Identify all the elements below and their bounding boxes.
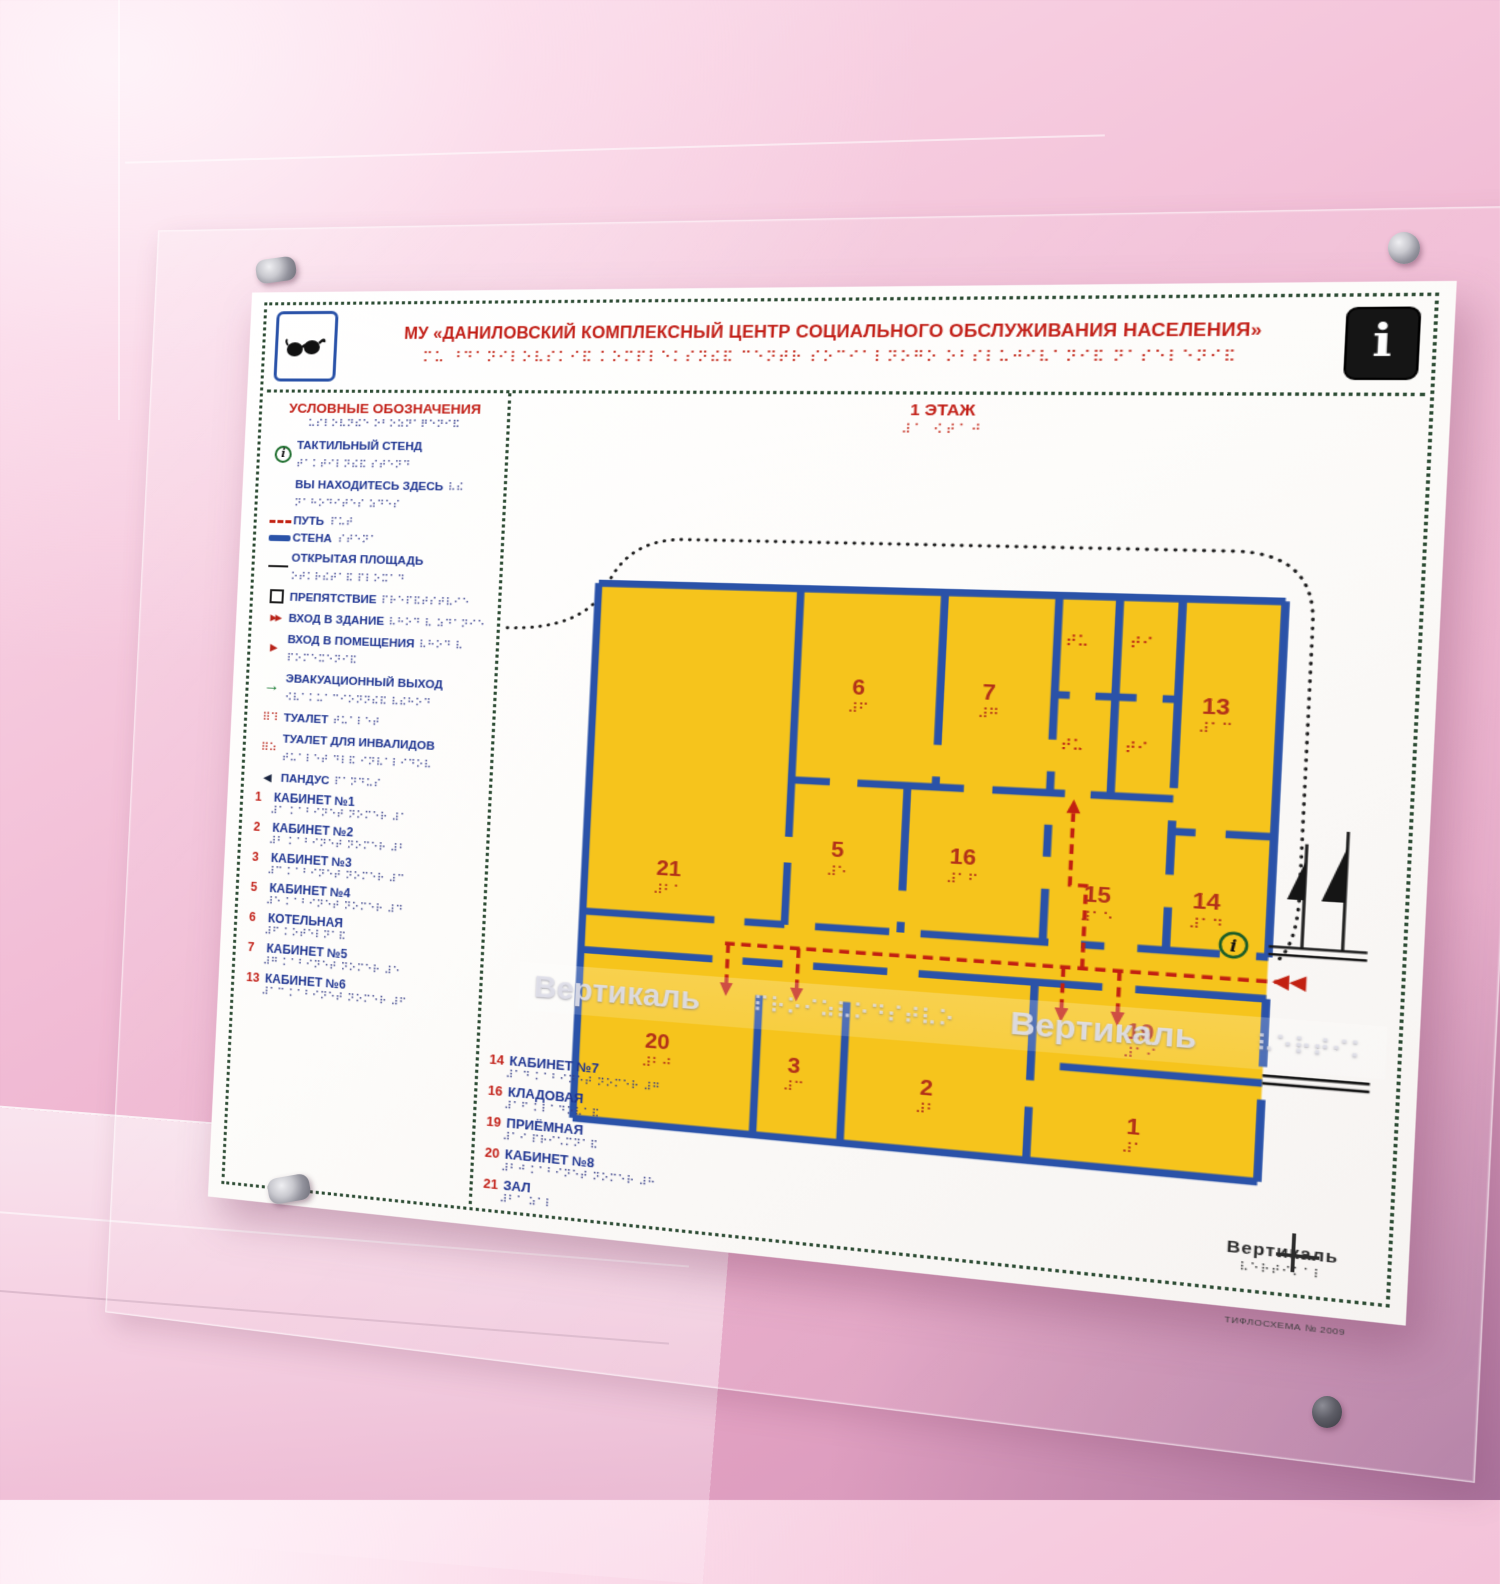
room-number: 6 [249, 910, 264, 925]
legend-heading: УСЛОВНЫЕ ОБОЗНАЧЕНИЯ [272, 401, 500, 417]
legend-item-label: ТУАЛЕТ ДЛЯ ИНВАЛИДОВ [282, 733, 435, 752]
you-are-here-marker: i [1220, 932, 1248, 958]
mounted-sign: МУ «ДАНИЛОВСКИЙ КОМПЛЕКСНЫЙ ЦЕНТР СОЦИАЛ… [208, 281, 1457, 1326]
legend-symbol-icon [265, 531, 292, 546]
room-number: 20 [484, 1145, 499, 1161]
svg-text:7: 7 [982, 680, 997, 705]
legend-items: ТАКТИЛЬНЫЙ СТЕНД ⠞⠁⠅⠞⠊⠇⠝⠮⠯ ⠎⠞⠑⠝⠙ ВЫ НАХО… [254, 436, 498, 798]
svg-text:5: 5 [831, 838, 845, 863]
sign-title-braille: ⠍⠥ ⠘⠙⠁⠝⠊⠇⠕⠧⠎⠅⠊⠯ ⠅⠕⠍⠏⠇⠑⠅⠎⠝⠮⠯ ⠉⠑⠝⠞⠗ ⠎⠕⠉⠊⠁⠇… [348, 348, 1329, 366]
room-number: 16 [488, 1083, 503, 1099]
legend-item-label: ПАНДУС [280, 773, 329, 788]
legend-item: ТАКТИЛЬНЫЙ СТЕНД ⠞⠁⠅⠞⠊⠇⠝⠮⠯ ⠎⠞⠑⠝⠙ [269, 436, 498, 475]
legend-item-braille: ⠕⠞⠅⠗⠮⠞⠁⠯ ⠏⠇⠕⠭⠁⠙ [290, 572, 405, 586]
legend-item-braille: ⠞⠥⠁⠇⠑⠞ ⠙⠇⠯ ⠊⠝⠧⠁⠇⠊⠙⠕⠧ [282, 753, 433, 772]
legend-symbol-icon [260, 640, 287, 655]
floor-plan-area: 1 ЭТАЖ ⠼⠁ ⠪⠞⠁⠚ [472, 393, 1425, 1300]
sign-title: МУ «ДАНИЛОВСКИЙ КОМПЛЕКСНЫЙ ЦЕНТР СОЦИАЛ… [349, 321, 1330, 345]
svg-text:15: 15 [1083, 883, 1112, 909]
svg-text:1: 1 [1126, 1115, 1141, 1141]
photo-of-tactile-sign: { "colors":{"panel":"#ffffff","dots_bord… [0, 0, 1500, 1500]
legend-item: ОТКРЫТАЯ ПЛОЩАДЬ ⠕⠞⠅⠗⠮⠞⠁⠯ ⠏⠇⠕⠭⠁⠙ [263, 548, 492, 590]
legend-item-label: СТЕНА [292, 532, 332, 546]
legend-item-label: ВЫ НАХОДИТЕСЬ ЗДЕСЬ [295, 479, 444, 493]
tactile-sign-panel: МУ «ДАНИЛОВСКИЙ КОМПЛЕКСНЫЙ ЦЕНТР СОЦИАЛ… [208, 281, 1457, 1326]
svg-text:⠼⠋: ⠼⠋ [847, 700, 869, 717]
svg-text:⠞⠥: ⠞⠥ [1060, 738, 1085, 756]
svg-text:i: i [1230, 938, 1238, 957]
svg-text:⠼⠑: ⠼⠑ [826, 862, 848, 880]
glasses-icon [273, 311, 338, 382]
svg-text:20: 20 [644, 1030, 670, 1056]
legend-item-braille: ⠪⠧⠁⠅⠥⠁⠉⠊⠕⠝⠝⠮⠯ ⠧⠮⠓⠕⠙ [284, 692, 431, 709]
wall-corner-line [118, 0, 120, 420]
legend-symbol-icon [268, 486, 295, 500]
legend-item-braille: ⠎⠞⠑⠝⠁ [338, 534, 378, 547]
legend-symbol-icon [255, 739, 282, 754]
room-number: 2 [253, 820, 268, 835]
svg-text:⠼⠁⠉: ⠼⠁⠉ [1198, 719, 1233, 737]
legend-symbol-icon [258, 677, 286, 696]
legend-symbol-icon [254, 769, 281, 784]
legend-symbol-icon [264, 559, 291, 574]
room-list-left: 1 КАБИНЕТ №1 ⠼⠁ ⠅⠁⠃⠊⠝⠑⠞ ⠝⠕⠍⠑⠗ ⠼⠁ 2 КАБИН… [243, 789, 480, 1014]
legend-item-braille: ⠏⠗⠑⠏⠯⠞⠎⠞⠧⠊⠑ [381, 595, 470, 609]
room-number: 7 [247, 940, 262, 955]
svg-text:⠼⠁⠑: ⠼⠁⠑ [1079, 907, 1113, 926]
room-number: 19 [486, 1114, 501, 1130]
svg-text:⠼⠁⠊: ⠼⠁⠊ [1122, 1044, 1157, 1064]
legend-item-label: ПУТЬ [293, 515, 324, 528]
svg-text:⠼⠁⠙: ⠼⠁⠙ [1188, 914, 1223, 933]
svg-text:⠼⠃: ⠼⠃ [914, 1100, 936, 1118]
room-number: 14 [489, 1052, 504, 1068]
info-icon: i [1343, 306, 1422, 380]
room-number: 1 [255, 789, 270, 804]
standoff-fixing [1312, 1396, 1342, 1428]
legend-item-braille: ⠧⠓⠕⠙ ⠧ ⠵⠙⠁⠝⠊⠑ [388, 617, 485, 631]
svg-text:⠞⠊: ⠞⠊ [1124, 741, 1149, 759]
legend-item-braille: ⠏⠁⠝⠙⠥⠎ [334, 776, 382, 790]
ramp-symbol [1287, 844, 1348, 902]
legend-item-label: ОТКРЫТАЯ ПЛОЩАДЬ [291, 552, 423, 567]
legend-item-label: ВХОД В ЗДАНИЕ [288, 613, 384, 628]
svg-text:⠼⠃⠁: ⠼⠃⠁ [652, 881, 683, 899]
legend-item-label: ПРЕПЯТСТВИЕ [289, 592, 377, 607]
legend-heading-braille: ⠥⠎⠇⠕⠧⠝⠮⠑ ⠕⠃⠕⠵⠝⠁⠟⠑⠝⠊⠯ [271, 418, 499, 432]
svg-text:14: 14 [1192, 889, 1222, 916]
svg-text:⠼⠁: ⠼⠁ [1121, 1139, 1144, 1158]
legend-column: УСЛОВНЫЕ ОБОЗНАЧЕНИЯ ⠥⠎⠇⠕⠧⠝⠮⠑ ⠕⠃⠕⠵⠝⠁⠟⠑⠝⠊… [228, 392, 511, 1204]
svg-text:⠞⠊: ⠞⠊ [1129, 636, 1154, 654]
legend-symbol-icon [266, 514, 293, 529]
room-number: 21 [483, 1176, 498, 1192]
svg-text:⠼⠁⠋: ⠼⠁⠋ [945, 869, 978, 888]
standoff-fixing [1388, 232, 1420, 264]
legend-symbol-icon [257, 709, 284, 724]
svg-text:⠼⠛: ⠼⠛ [977, 705, 1000, 722]
legend-item: ВХОД В ПОМЕЩЕНИЯ ⠧⠓⠕⠙ ⠧ ⠏⠕⠍⠑⠭⠑⠝⠊⠯ [260, 629, 488, 674]
svg-text:19: 19 [1126, 1019, 1155, 1046]
sign-header: МУ «ДАНИЛОВСКИЙ КОМПЛЕКСНЫЙ ЦЕНТР СОЦИАЛ… [267, 300, 1430, 397]
legend-item-label: ЭВАКУАЦИОННЫЙ ВЫХОД [285, 673, 443, 692]
svg-text:6: 6 [852, 676, 866, 700]
legend-symbol-icon [262, 610, 289, 625]
svg-text:2: 2 [919, 1076, 933, 1101]
legend-item: ЭВАКУАЦИОННЫЙ ВЫХОД ⠪⠧⠁⠅⠥⠁⠉⠊⠕⠝⠝⠮⠯ ⠧⠮⠓⠕⠙ [258, 668, 486, 714]
legend-item-braille: ⠞⠥⠁⠇⠑⠞ [332, 716, 380, 729]
svg-text:16: 16 [949, 845, 977, 871]
legend-item-braille: ⠞⠁⠅⠞⠊⠇⠝⠮⠯ ⠎⠞⠑⠝⠙ [296, 459, 411, 472]
legend-item-label: ТУАЛЕТ [283, 712, 328, 726]
legend-symbol-icon [263, 589, 290, 604]
room-number: 3 [252, 850, 267, 865]
svg-text:21: 21 [656, 857, 682, 882]
legend-item: ВЫ НАХОДИТЕСЬ ЗДЕСЬ ⠧⠮ ⠝⠁⠓⠕⠙⠊⠞⠑⠎ ⠵⠙⠑⠎ [267, 475, 496, 515]
legend-item-label: ТАКТИЛЬНЫЙ СТЕНД [297, 440, 423, 453]
room-name: ЗАЛ [503, 1178, 531, 1195]
legend-item: ПУТЬ ⠏⠥⠞ [266, 514, 494, 533]
legend-item-braille: ⠏⠥⠞ [330, 517, 354, 529]
room-number: 13 [246, 970, 261, 985]
legend-item: СТЕНА ⠎⠞⠑⠝⠁ [265, 531, 493, 550]
legend-symbol-icon [269, 445, 297, 462]
svg-text:⠞⠥: ⠞⠥ [1065, 634, 1090, 652]
room-number: 5 [250, 880, 265, 895]
wall-seam [125, 134, 1105, 163]
svg-text:13: 13 [1202, 694, 1231, 720]
legend-item-label: ВХОД В ПОМЕЩЕНИЯ [287, 634, 415, 651]
